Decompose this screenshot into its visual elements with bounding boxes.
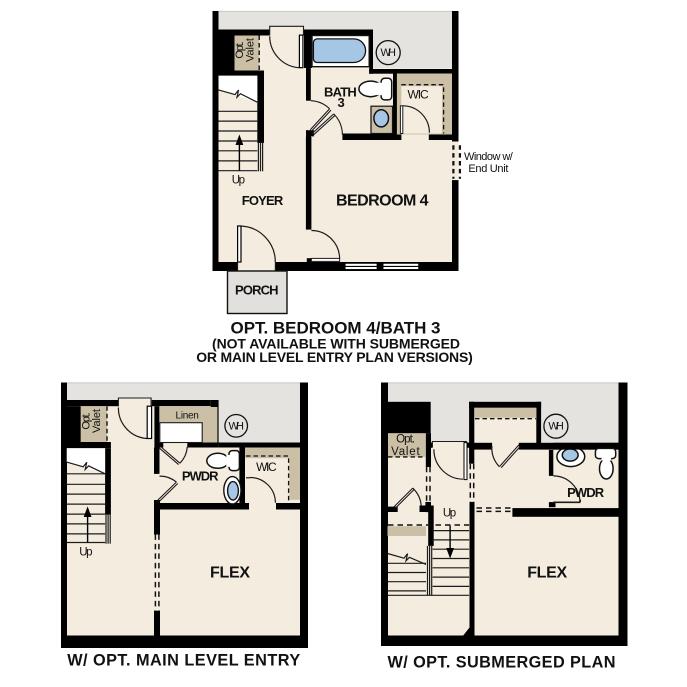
svg-text:End Unit: End Unit: [468, 163, 508, 175]
svg-text:Valet: Valet: [91, 409, 103, 433]
svg-text:Valet: Valet: [245, 38, 257, 62]
svg-text:Valet: Valet: [391, 446, 420, 458]
svg-text:FLEX: FLEX: [527, 565, 567, 582]
svg-text:OR MAIN LEVEL ENTRY PLAN VERSI: OR MAIN LEVEL ENTRY PLAN VERSIONS): [196, 349, 473, 365]
svg-text:Window w/: Window w/: [464, 151, 514, 163]
svg-text:PWDR: PWDR: [182, 468, 219, 483]
svg-text:W/ OPT. SUBMERGED PLAN: W/ OPT. SUBMERGED PLAN: [388, 654, 616, 672]
svg-text:WH: WH: [380, 47, 396, 59]
svg-text:WH: WH: [228, 421, 244, 433]
svg-text:WIC: WIC: [408, 87, 430, 101]
svg-text:BEDROOM 4: BEDROOM 4: [336, 193, 429, 210]
svg-text:Opt.: Opt.: [396, 434, 415, 446]
svg-text:3: 3: [337, 95, 344, 110]
svg-text:FLEX: FLEX: [210, 564, 250, 581]
svg-text:W/ OPT. MAIN LEVEL ENTRY: W/ OPT. MAIN LEVEL ENTRY: [67, 652, 300, 670]
svg-text:Linen: Linen: [176, 411, 199, 422]
svg-text:PORCH: PORCH: [235, 282, 279, 297]
svg-text:PWDR: PWDR: [567, 485, 605, 500]
svg-text:Up: Up: [443, 508, 456, 520]
svg-text:WH: WH: [548, 421, 564, 433]
svg-text:Up: Up: [232, 175, 245, 187]
svg-text:WIC: WIC: [256, 460, 277, 474]
svg-text:Up: Up: [79, 546, 92, 558]
svg-text:FOYER: FOYER: [242, 193, 284, 208]
